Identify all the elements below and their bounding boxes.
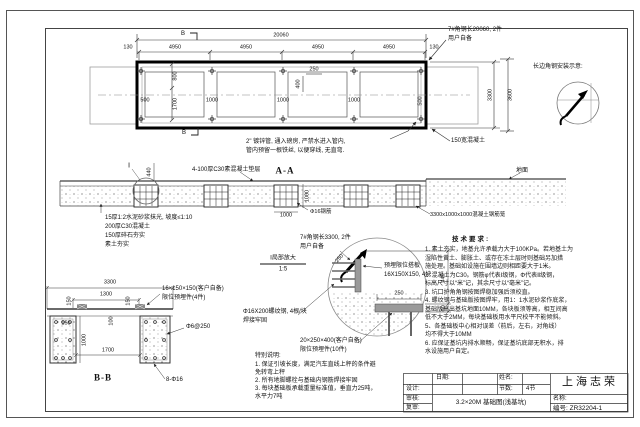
label-limit-plate-line1: 预埋限位搭板 — [384, 263, 420, 271]
label-ground: 地面 — [516, 168, 528, 176]
note-threaded-bar-line2: 焊接牢固 — [243, 318, 267, 326]
titleblock-drawing-title: 3.2×20M 基础图(浅基坑) — [432, 399, 550, 407]
angle-steel-arrow-icon — [561, 90, 588, 125]
dim-4950-3: 4950 — [312, 45, 324, 52]
tech-line: 6. 应保证基坑内排水顺畅，保证基坑底部无积水，排 — [425, 341, 564, 349]
dim-500-right: 500 — [418, 96, 425, 105]
label-rebar-phi16: Φ16钢筋 — [310, 209, 332, 216]
tech-line: 基础版高出基坑地面10MM，各块板须等高，相互间高 — [425, 307, 568, 315]
titleblock-date-label: 日期: — [436, 375, 450, 383]
tech-line: 均不得大于10MM — [425, 332, 472, 340]
special-note-line: 3. 每块基础板承载重量标准值，垂直力25吨， — [255, 386, 376, 394]
titleblock-name-field-label: 名称: — [553, 396, 567, 404]
dim-3300: 3300 — [488, 89, 495, 101]
note-threaded-bar-line1: Φ16X200螺纹钢, 4根/块 — [243, 309, 307, 317]
note-short-angle-steel-line2: 用户自备 — [300, 244, 324, 252]
label-layer-4: 素土夯实 — [105, 242, 129, 250]
note-embed-part-line2: 限位预埋件(10件) — [300, 347, 347, 355]
angle-steel-arrow-icon — [341, 249, 367, 282]
dim-250-plate: 250 — [394, 291, 403, 298]
dim-100-bb: 100 — [109, 316, 116, 325]
titleblock-sections-value: 4节 — [526, 386, 535, 394]
dim-250: 250 — [309, 67, 318, 74]
dim-4950-1: 4950 — [169, 45, 181, 52]
dim-130-left: 130 — [123, 45, 132, 52]
note-long-angle-steel-line2: 用户自备 — [448, 36, 472, 44]
titleblock-recheck-label: 复审: — [406, 405, 420, 413]
label-embed-bb-line2: 限位预埋件(4件) — [162, 295, 205, 303]
tech-line: 2. 混凝土为C30。钢筋φ代表Ⅰ级钢，Φ代表Ⅱ级钢， — [425, 273, 558, 281]
section-mark-b-bottom: B — [182, 130, 186, 138]
label-cushion: 4-100厚C30素混凝土垫层 — [192, 167, 260, 175]
dim-3600: 3600 — [508, 89, 515, 101]
tech-line: 施处理。基础如设施在围墙边则相距要大于1米。 — [425, 264, 554, 272]
note-pipe-line1: 2" 镀锌管, 通入磅房, 严禁水进入管内, — [246, 139, 345, 147]
tech-line: 3. 坑口护角角钢按图焊稳加强后须校直。 — [425, 290, 534, 298]
tech-line: 湿陷性黄土、膨胀土、或存在冻土层时则基础另加措 — [425, 256, 563, 264]
dim-400: 400 — [296, 79, 303, 88]
dim-440-aa: 440 — [147, 167, 154, 176]
label-stirrup: Φ6@250 — [186, 324, 210, 332]
label-embed-bb-line1: 16×150×150(客户自备) — [162, 286, 224, 294]
detail-scale: 1:5 — [279, 266, 287, 274]
label-rebar-cage: 3300x1000x1000混凝土钢筋笼 — [430, 212, 505, 219]
titleblock-drawing-number: 编号: ZR32204-1 — [553, 405, 602, 413]
dim-1000-3: 1000 — [348, 98, 360, 105]
label-main-rebar: 8-Φ16 — [166, 377, 183, 385]
section-mark-b-top: B — [181, 31, 185, 39]
special-note-line: 免转弯上秤 — [255, 370, 285, 378]
titleblock-sections-label: 节数: — [499, 386, 513, 394]
special-notes-title: 特别说明: — [255, 353, 281, 361]
titleblock-review-label: 审核: — [406, 396, 420, 404]
tech-line: 1. 素土夯实，地基允许承载力大于100KPa。若地基土为 — [425, 247, 573, 255]
special-note-line: 水平力7吨 — [255, 394, 282, 402]
section-bb-title: B-B — [94, 372, 112, 383]
note-short-angle-steel-line1: 7#角钢长3300, 2件 — [300, 235, 351, 243]
plan-view — [90, 62, 478, 128]
detail-mark-I: Ⅰ — [128, 163, 130, 172]
dim-130-right: 130 — [429, 45, 438, 52]
tech-line: 标高尺寸以“米”记，其余尺寸以“毫米”记。 — [425, 281, 535, 289]
special-note-line: 2. 所有地脚螺栓与基础内钢筋焊接牢固 — [255, 378, 358, 386]
tech-line: 5、各基础板中心相对误差（前后，左右，对角线） — [425, 324, 560, 332]
tech-line: 4. 螺纹钢与基础版按图焊牢，用1：1水泥砂浆作底浆， — [425, 298, 570, 306]
dim-4950-2: 4950 — [240, 45, 252, 52]
dim-150-c: 150 — [61, 321, 70, 328]
note-long-angle-steel-line1: 7#角钢长20060, 2件 — [448, 27, 502, 35]
install-diagram — [557, 82, 599, 125]
tech-line: 水设施用户自定。 — [425, 349, 473, 357]
label-layer-1: 15厚1:2水泥砂浆抹光, 坡度≤1:10 — [105, 215, 192, 223]
label-layer-3: 150厚碎石夯实 — [105, 233, 145, 241]
dim-total-length: 20060 — [273, 33, 288, 40]
label-layer-2: 200厚C30混凝土 — [105, 224, 150, 232]
dim-1000-1: 1000 — [206, 98, 218, 105]
dim-150-a: 150 — [67, 296, 74, 305]
detail-title: Ⅰ局部放大 — [270, 255, 296, 263]
titleblock-design-label: 设计: — [406, 386, 420, 394]
note-pipe-line2: 管内预留一根铁丝, 以便穿线, 无直弯. — [246, 148, 344, 156]
section-aa-title: A-A — [276, 165, 295, 176]
embed-plates — [77, 304, 145, 309]
titleblock-company: 上海志荣 — [552, 376, 628, 390]
dim-1000-2: 1000 — [277, 98, 289, 105]
note-embed-part-line1: 20×250×400(客户自备) — [300, 338, 362, 346]
tech-requirements-title: 技术要求: — [452, 236, 490, 244]
dim-500-left: 500 — [140, 98, 149, 105]
dim-150-b: 150 — [126, 296, 133, 305]
dim-1000-bb: 1000 — [82, 334, 89, 346]
dim-1000-width: 1000 — [280, 213, 292, 220]
dim-1000-depth: 1000 — [305, 190, 312, 202]
drawing-sheet: B B 20060 130 4950 4950 4950 4950 130 50… — [0, 0, 640, 427]
dim-1700: 1700 — [173, 98, 180, 110]
dim-800: 800 — [173, 71, 180, 80]
dim-3300-bb: 3300 — [104, 280, 116, 287]
dim-4950-4: 4950 — [383, 45, 395, 52]
dim-1300-bb: 1300 — [100, 292, 112, 299]
titleblock-name-label: 姓名: — [499, 375, 513, 383]
note-concrete-edge: 150宽混凝土 — [451, 138, 485, 146]
install-diagram-label: 长边角钢安装示意: — [533, 64, 583, 72]
dim-1700-bb: 1700 — [102, 348, 114, 355]
tech-line: 低不大于2MM，每块基础板用水平尺校平不能倾斜。 — [425, 315, 564, 323]
special-note-line: 1. 保证引坡长度，满足汽车直线上秤的条件避 — [255, 362, 376, 370]
